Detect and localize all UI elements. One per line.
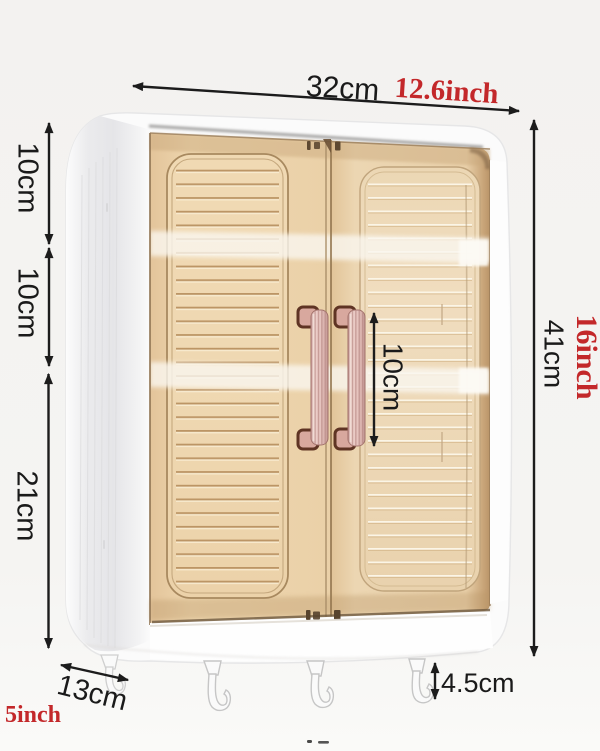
svg-text:10cm: 10cm xyxy=(11,268,43,339)
svg-text:5inch: 5inch xyxy=(5,702,61,728)
svg-text:21cm: 21cm xyxy=(10,471,42,542)
svg-text:41cm: 41cm xyxy=(539,320,570,388)
svg-text:16inch: 16inch xyxy=(570,314,600,399)
svg-text:4.5cm: 4.5cm xyxy=(441,668,515,698)
svg-text:32cm: 32cm xyxy=(305,70,380,108)
svg-text:10cm: 10cm xyxy=(378,343,409,411)
svg-text:10cm: 10cm xyxy=(11,143,43,214)
svg-text:12.6inch: 12.6inch xyxy=(394,72,500,110)
